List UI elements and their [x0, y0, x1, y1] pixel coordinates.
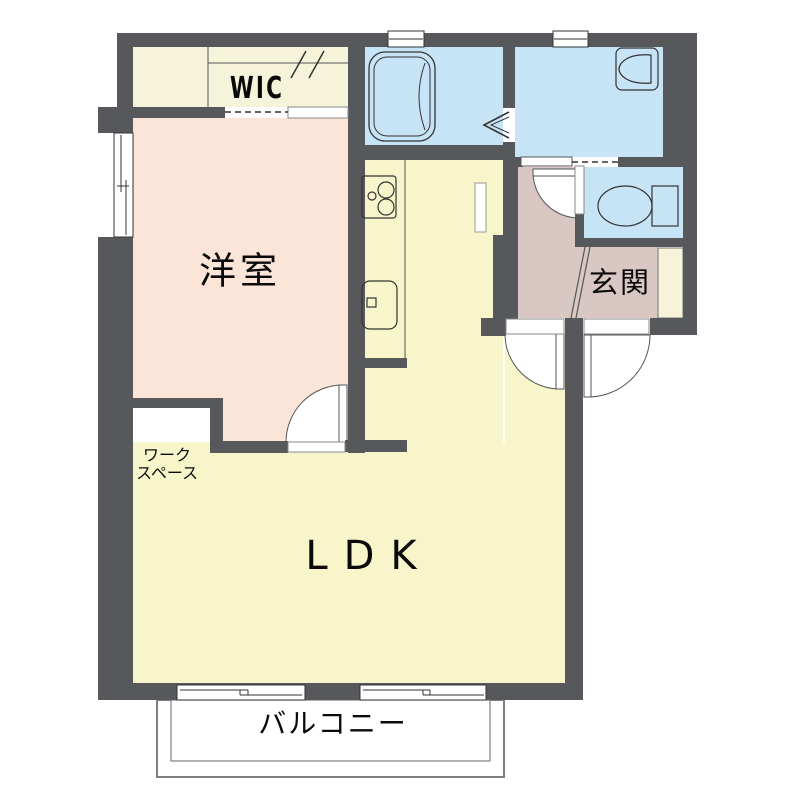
entry-label: 玄関 — [589, 266, 651, 299]
doorway — [506, 319, 564, 334]
floor-plan-drawing — [0, 0, 800, 800]
room-washroom — [515, 47, 663, 157]
sliding-window-icon-bedroom-west — [114, 133, 133, 237]
sliding-window-icon-balcony-left — [177, 685, 305, 700]
refrigerator-space — [475, 183, 486, 232]
wall-segment — [481, 318, 506, 336]
balcony-label: バルコニー — [258, 708, 407, 740]
wall-segment — [363, 358, 407, 368]
workspace-label: ワークスペース — [136, 447, 198, 484]
wall-segment — [663, 33, 697, 167]
wall-segment — [503, 47, 515, 108]
wic-label: WIC — [230, 72, 284, 107]
wall-segment — [575, 238, 683, 247]
wall-segment — [618, 157, 683, 167]
wall-segment — [503, 142, 515, 160]
wall-segment — [565, 318, 583, 700]
wall-segment — [117, 33, 133, 118]
wall-segment — [130, 398, 212, 408]
door-swing-icon-front-door — [584, 335, 650, 397]
wall-segment — [345, 440, 407, 452]
workspace-desk — [133, 408, 210, 442]
closet-opening — [288, 107, 348, 118]
wall-segment — [98, 237, 133, 700]
wall-segment — [363, 145, 503, 160]
wall-segment — [493, 235, 518, 322]
ldk-label: LDK — [289, 533, 432, 579]
front-doorway — [584, 319, 649, 334]
sliding-window-icon-top-washroom — [553, 31, 588, 47]
wall-segment — [650, 318, 697, 335]
wall-segment — [575, 213, 584, 238]
wall-segment — [503, 160, 518, 235]
toilet-doorway — [575, 166, 584, 214]
sliding-window-icon-balcony-right — [360, 685, 486, 700]
sliding-door-panel — [521, 157, 572, 166]
doorway — [288, 442, 345, 452]
shoe-cabinet — [658, 248, 683, 318]
bedroom-label: 洋室 — [199, 251, 281, 294]
floor-plan: WIC 洋室 LDK 玄関 バルコニー ワークスペース — [0, 0, 800, 800]
wall-segment — [348, 33, 365, 453]
wall-segment — [683, 167, 697, 335]
sliding-window-icon-top-bath — [388, 31, 424, 47]
wall-segment — [133, 107, 225, 118]
wall-segment — [98, 107, 133, 133]
